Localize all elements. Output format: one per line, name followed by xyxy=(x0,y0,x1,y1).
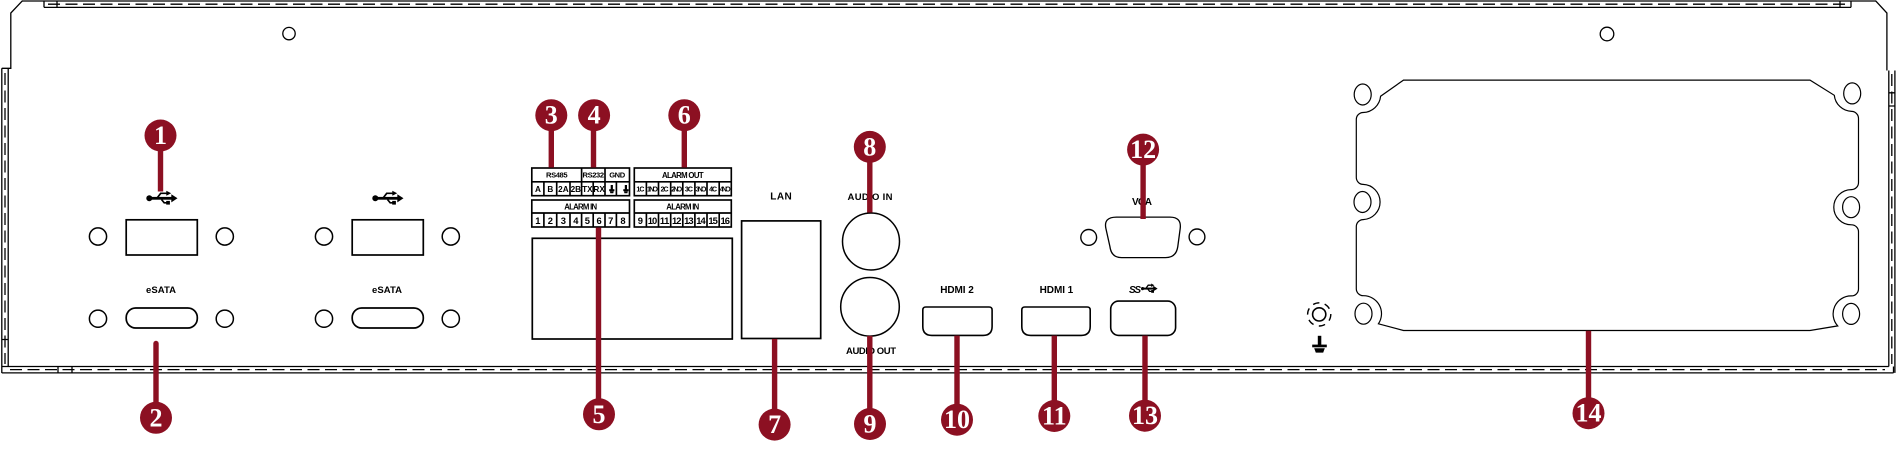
svg-text:1C: 1C xyxy=(636,187,644,194)
svg-text:5: 5 xyxy=(585,215,590,226)
svg-text:ALARM IN: ALARM IN xyxy=(564,202,597,211)
svg-text:2: 2 xyxy=(548,215,553,226)
svg-text:eSATA: eSATA xyxy=(372,285,402,296)
svg-text:2B: 2B xyxy=(571,185,582,194)
svg-text:10: 10 xyxy=(648,215,658,226)
svg-text:GND: GND xyxy=(609,171,626,180)
svg-text:3: 3 xyxy=(561,215,566,226)
svg-text:3NO: 3NO xyxy=(696,187,708,194)
svg-text:8: 8 xyxy=(863,132,876,161)
svg-text:7: 7 xyxy=(608,215,613,226)
svg-text:B: B xyxy=(547,185,553,194)
svg-text:ALARM IN: ALARM IN xyxy=(666,202,699,211)
svg-text:7: 7 xyxy=(768,410,781,439)
svg-text:5: 5 xyxy=(593,400,606,429)
svg-text:2C: 2C xyxy=(661,187,669,194)
svg-text:13: 13 xyxy=(684,215,694,226)
svg-text:4NO: 4NO xyxy=(720,187,732,194)
svg-text:16: 16 xyxy=(720,215,730,226)
svg-text:2NO: 2NO xyxy=(671,187,683,194)
svg-text:HDMI 1: HDMI 1 xyxy=(1040,285,1074,296)
svg-text:HDMI 2: HDMI 2 xyxy=(940,285,974,296)
svg-text:4: 4 xyxy=(588,101,601,130)
svg-text:4C: 4C xyxy=(709,187,717,194)
svg-text:1NO: 1NO xyxy=(647,187,659,194)
svg-text:14: 14 xyxy=(696,215,706,226)
svg-text:6: 6 xyxy=(678,101,691,130)
svg-text:RS232: RS232 xyxy=(583,171,605,180)
svg-text:9: 9 xyxy=(638,215,643,226)
svg-text:12: 12 xyxy=(672,215,682,226)
svg-text:11: 11 xyxy=(1042,402,1067,431)
svg-text:LAN: LAN xyxy=(770,191,792,202)
svg-text:A: A xyxy=(535,185,541,194)
svg-text:11: 11 xyxy=(660,215,670,226)
svg-text:RS485: RS485 xyxy=(546,171,568,180)
svg-text:TX: TX xyxy=(582,185,593,194)
svg-text:3C: 3C xyxy=(685,187,693,194)
svg-text:3: 3 xyxy=(545,101,558,130)
svg-text:6: 6 xyxy=(596,215,601,226)
svg-text:8: 8 xyxy=(620,215,625,226)
svg-text:eSATA: eSATA xyxy=(146,285,176,296)
svg-text:10: 10 xyxy=(944,405,970,434)
svg-text:2A: 2A xyxy=(558,185,569,194)
svg-text:1: 1 xyxy=(535,215,540,226)
svg-text:15: 15 xyxy=(708,215,718,226)
svg-text:4: 4 xyxy=(573,215,579,226)
svg-text:9: 9 xyxy=(864,410,877,439)
svg-text:RX: RX xyxy=(593,185,605,194)
svg-text:2: 2 xyxy=(150,403,163,432)
svg-text:13: 13 xyxy=(1132,401,1158,430)
svg-text:SS: SS xyxy=(1129,285,1141,296)
svg-text:12: 12 xyxy=(1130,135,1156,164)
svg-text:1: 1 xyxy=(154,121,167,150)
svg-text:ALARM OUT: ALARM OUT xyxy=(662,171,704,180)
svg-text:14: 14 xyxy=(1576,399,1602,428)
